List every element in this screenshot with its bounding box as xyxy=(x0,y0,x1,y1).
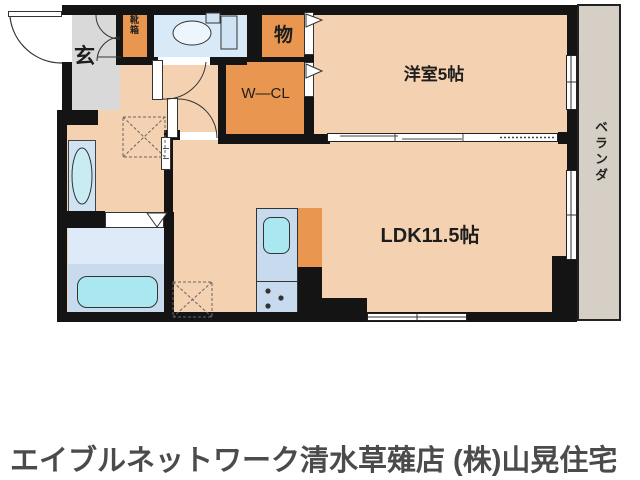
wall-bath-right xyxy=(164,212,174,312)
veranda-label: ベランダ xyxy=(591,120,610,184)
wall-top xyxy=(62,5,577,15)
western-room-label: 洋室5帖 xyxy=(314,60,554,85)
toilet-door-leaf xyxy=(152,60,163,100)
bath-folding-door xyxy=(105,212,164,228)
wall-genkan-right xyxy=(116,5,123,63)
wcl-label: W—CL xyxy=(226,85,305,102)
room-toilet xyxy=(154,15,247,57)
refrigerator-block xyxy=(298,208,322,267)
storage-door xyxy=(304,12,314,55)
storage-label: 物 xyxy=(262,20,305,47)
ldk-label: LDK11.5帖 xyxy=(340,219,520,248)
wall-closet-col-b xyxy=(304,97,314,134)
wall-closet-col-a xyxy=(304,55,314,62)
wcl-door xyxy=(304,62,314,97)
sliding-partition xyxy=(327,133,558,142)
wall-under-storage xyxy=(218,57,314,62)
wall-corner-block xyxy=(552,256,577,322)
wall-washbath xyxy=(57,211,105,228)
wall-divider-right xyxy=(558,132,567,144)
window-ldk-bottom xyxy=(367,313,467,321)
wall-step xyxy=(57,110,98,125)
wall-wcl-left xyxy=(218,57,226,142)
kitchen-sink xyxy=(263,217,290,254)
entrance-door-arc xyxy=(10,17,62,63)
wall-wcl-bottom xyxy=(218,134,330,144)
washroom-sliding-door xyxy=(161,137,171,170)
wall-shoebox-toilet xyxy=(147,5,154,57)
window-western-room xyxy=(566,55,577,110)
toilet-door-opening xyxy=(158,57,210,65)
kitchen-counter-divider xyxy=(257,281,297,282)
footer-title: エイブルネットワーク清水草薙店 (株)山晃住宅 xyxy=(10,437,638,479)
shoebox-label: 靴箱 xyxy=(128,15,141,35)
floorplan-page: ベランダ xyxy=(0,0,640,480)
washbasin-unit xyxy=(68,140,96,212)
hall-door-opening xyxy=(180,132,218,140)
hall-door-leaf xyxy=(167,98,178,138)
veranda: ベランダ xyxy=(577,4,621,321)
genkan-label: 玄 xyxy=(74,40,95,70)
entrance-opening xyxy=(62,15,72,62)
bathtub xyxy=(77,276,158,308)
entrance-door-leaf xyxy=(8,11,62,17)
window-ldk-right xyxy=(566,170,577,260)
wall-kitchen-step xyxy=(298,298,367,322)
wall-toilet-right xyxy=(247,5,262,62)
